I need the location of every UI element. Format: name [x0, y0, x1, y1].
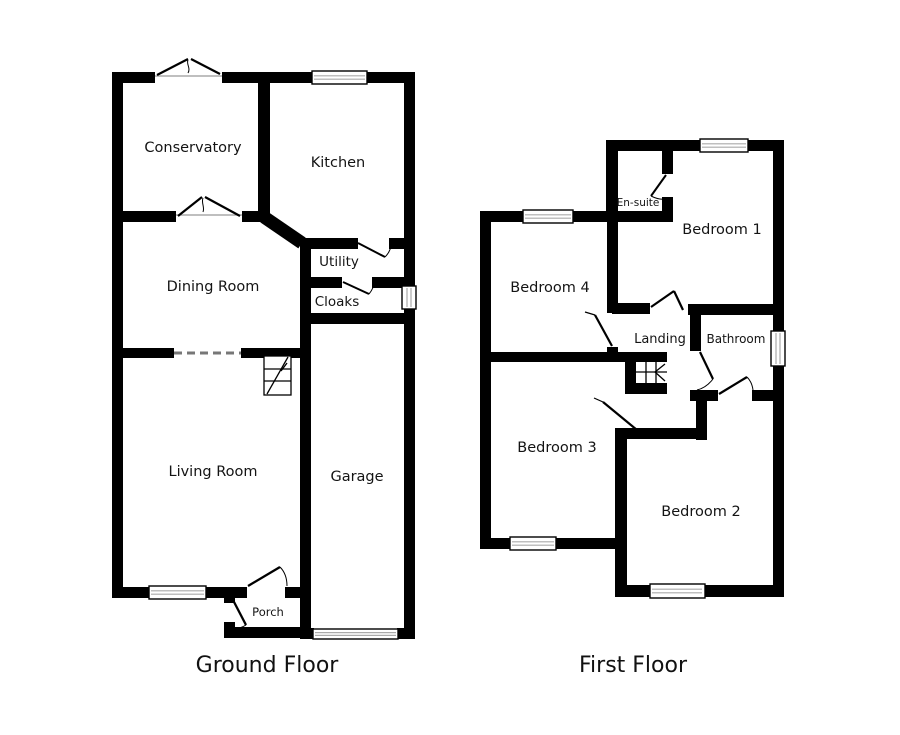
label-bathroom: Bathroom — [707, 332, 766, 346]
cloaks-door — [343, 282, 374, 294]
label-utility: Utility — [319, 254, 359, 270]
first-floor-plan: En-suite Bedroom 1 Bedroom 4 Landing Bat… — [480, 139, 785, 678]
label-bedroom-4: Bedroom 4 — [510, 280, 589, 296]
label-conservatory: Conservatory — [144, 140, 242, 156]
bathroom-bedroom2-door — [719, 377, 753, 394]
floorplan-image: Conservatory Kitchen Dining Room Utility… — [0, 0, 900, 735]
label-en-suite: En-suite — [617, 197, 660, 209]
bedroom4-window — [523, 210, 573, 223]
label-porch: Porch — [252, 605, 284, 619]
label-living-room: Living Room — [168, 464, 257, 480]
ground-floor-title: Ground Floor — [196, 653, 340, 678]
garage-door — [313, 629, 398, 639]
first-floor-stairs — [636, 362, 667, 383]
bedroom1-door — [651, 291, 683, 310]
label-bedroom-3: Bedroom 3 — [517, 440, 596, 456]
bathroom-door — [697, 352, 713, 390]
ensuite-door — [651, 175, 666, 199]
label-cloaks: Cloaks — [315, 294, 360, 310]
conservatory-dining-door — [176, 197, 242, 216]
utility-door — [358, 243, 391, 257]
ground-floor-plan: Conservatory Kitchen Dining Room Utility… — [112, 59, 416, 678]
label-bedroom-1: Bedroom 1 — [682, 222, 761, 238]
ground-stairs — [264, 356, 291, 395]
floorplan-page: Conservatory Kitchen Dining Room Utility… — [0, 0, 900, 735]
bedroom3-door — [594, 398, 637, 430]
living-room-window — [149, 586, 206, 599]
label-bedroom-2: Bedroom 2 — [661, 504, 740, 520]
cloaks-window — [402, 286, 416, 309]
first-floor-title: First Floor — [579, 653, 688, 678]
conservatory-garden-door — [155, 59, 222, 76]
label-landing: Landing — [634, 332, 686, 347]
bathroom-window — [771, 331, 785, 366]
bedroom4-door — [585, 312, 612, 346]
label-garage: Garage — [330, 469, 383, 485]
bedroom1-window — [700, 139, 748, 152]
bedroom2-window — [650, 584, 705, 598]
label-kitchen: Kitchen — [311, 155, 366, 171]
label-dining-room: Dining Room — [167, 279, 260, 295]
porch-inner-door — [248, 567, 287, 586]
kitchen-window — [312, 71, 367, 84]
bedroom3-window — [510, 537, 556, 550]
